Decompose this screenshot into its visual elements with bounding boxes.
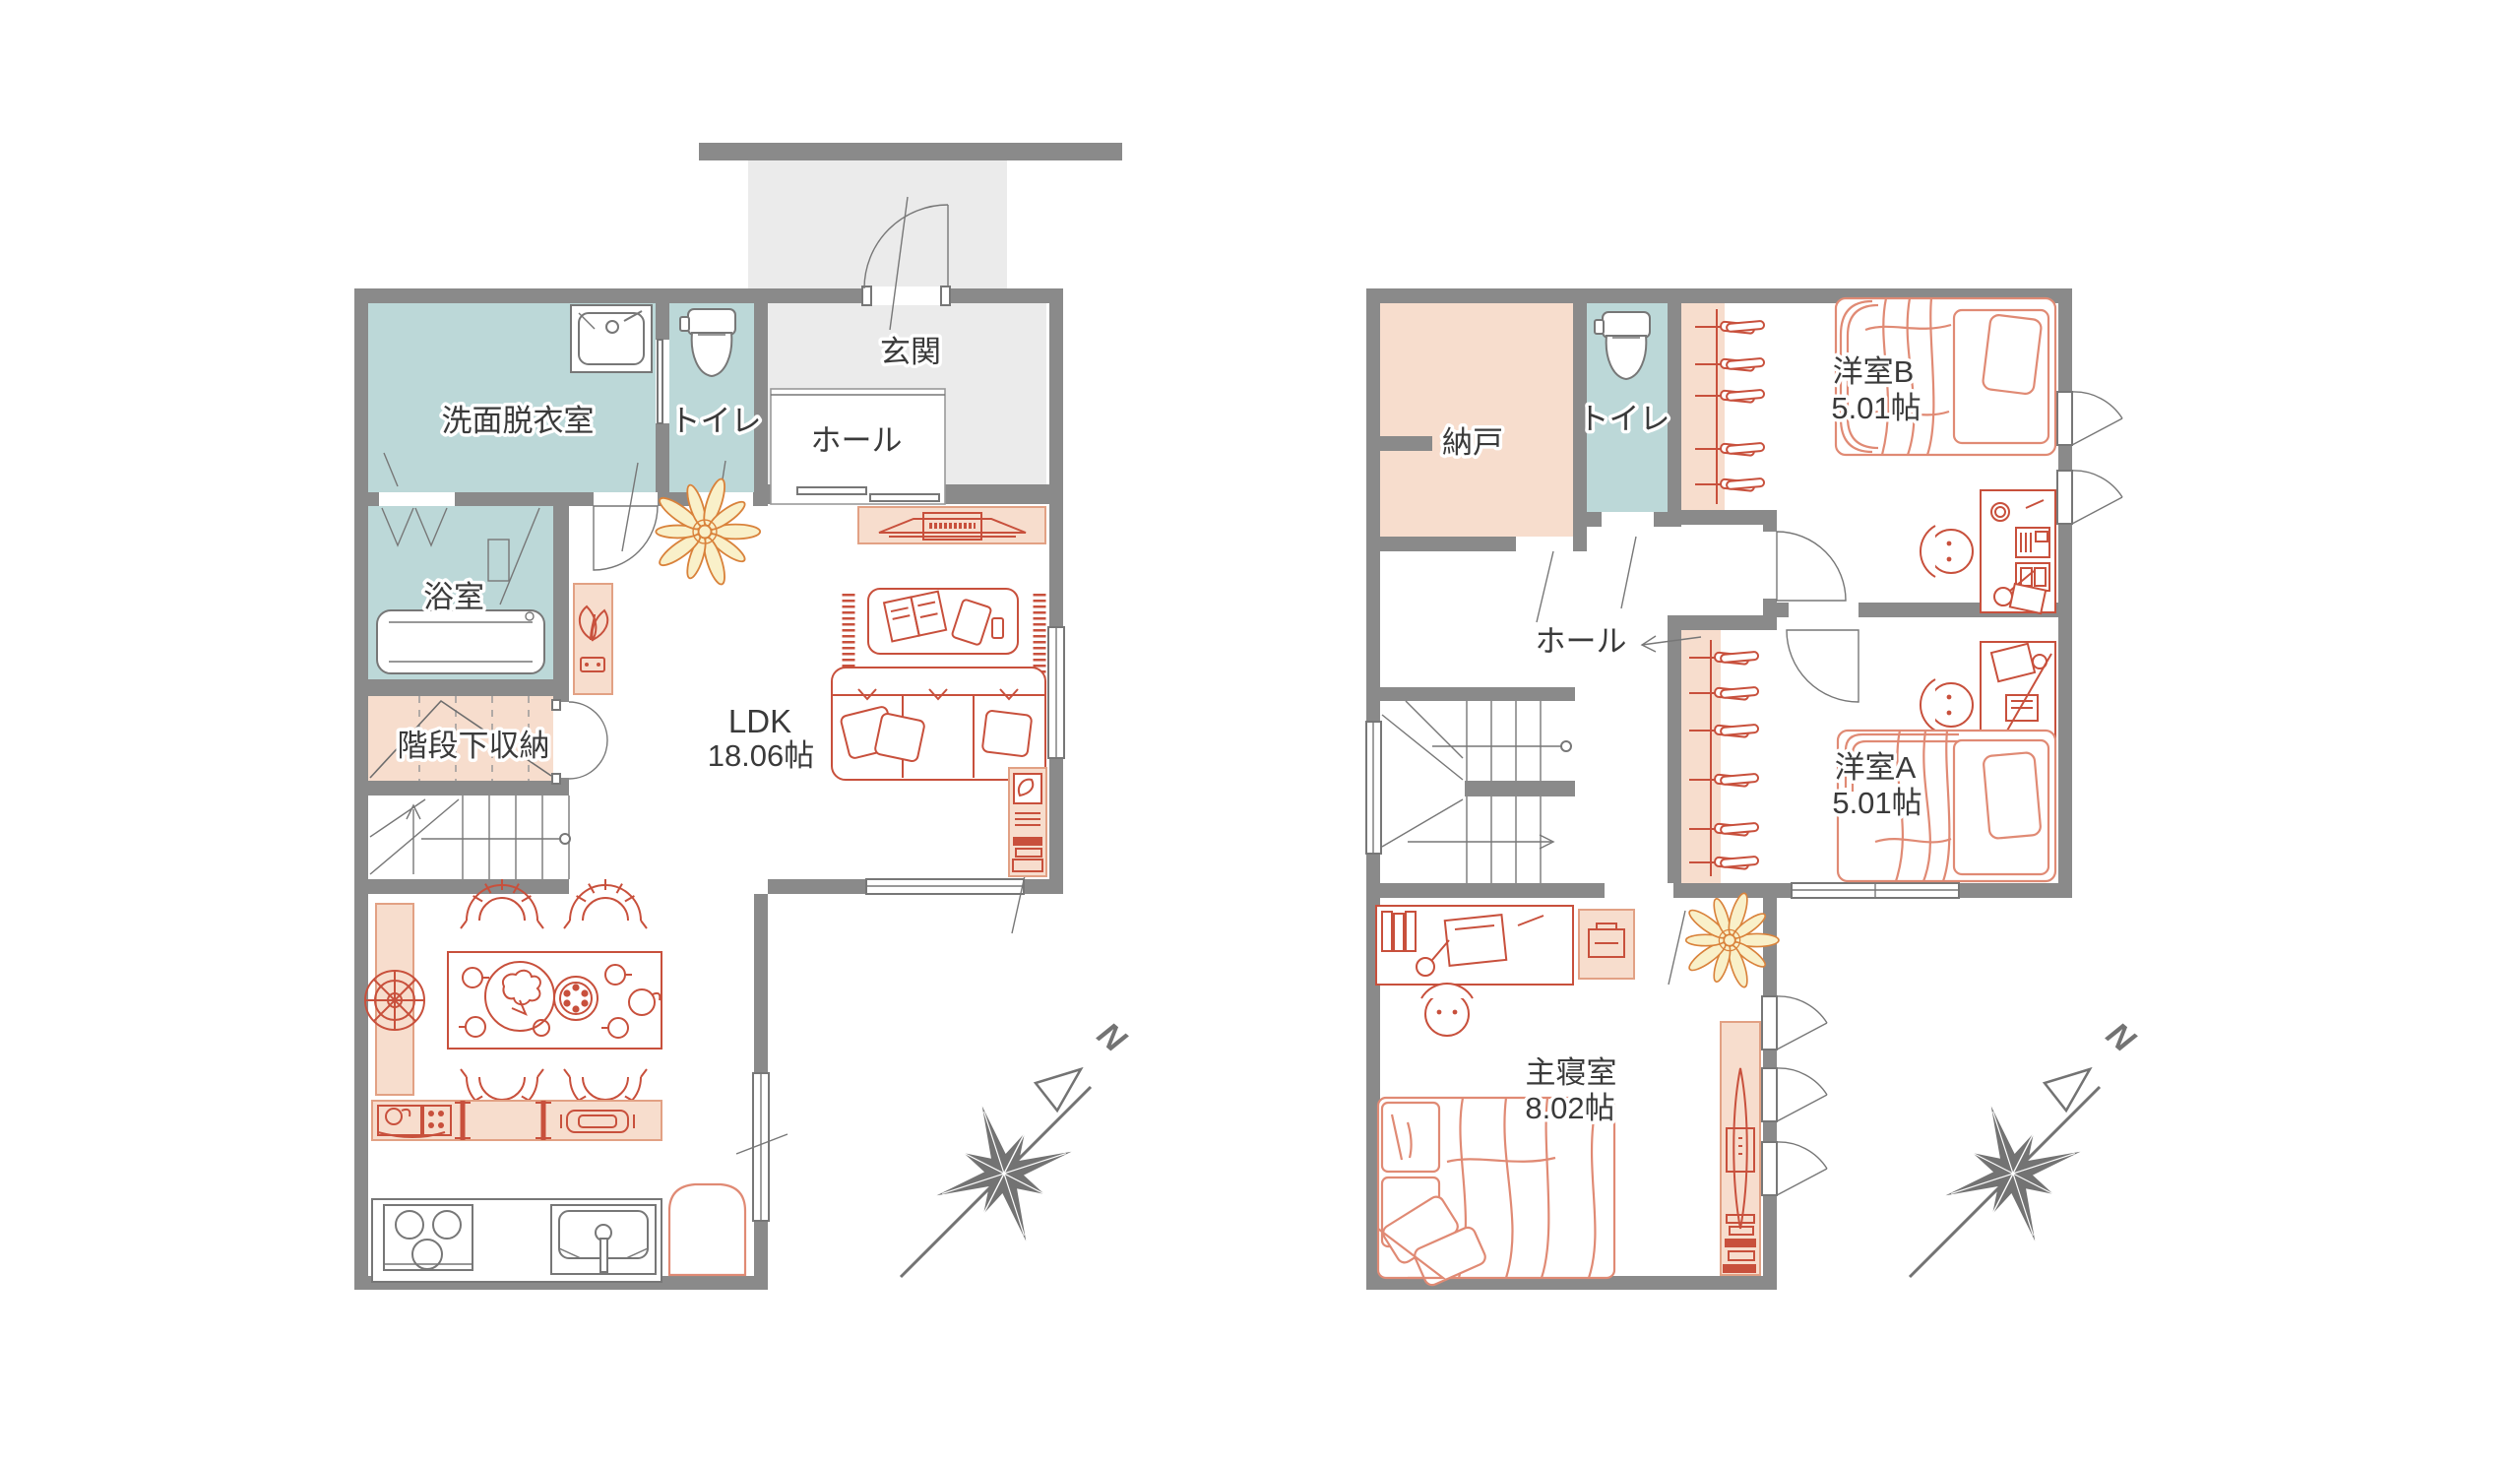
stairs-floor1 bbox=[370, 796, 570, 879]
tv-board bbox=[858, 507, 1045, 543]
room-label-hall1: ホール bbox=[811, 423, 903, 458]
roomA-closet-floor bbox=[1675, 630, 1721, 883]
dining-cupboard bbox=[365, 904, 424, 1095]
side-shelf bbox=[574, 584, 612, 694]
floor2-plan: 納戸 トイレ 洋室B 5.01帖 ホール 洋室A 5.01帖 主寝室 8.02帖… bbox=[1366, 288, 2143, 1290]
room-storage-floor bbox=[1380, 303, 1573, 537]
room-label-understairs: 階段下収納 bbox=[398, 729, 550, 763]
master-desk bbox=[1376, 906, 1573, 1036]
washroom-sink bbox=[571, 305, 652, 372]
roomB-desk bbox=[1921, 490, 2055, 613]
room-label-hall2: ホール bbox=[1536, 624, 1627, 659]
storage-door bbox=[1537, 551, 1553, 622]
room-label-toilet2: トイレ bbox=[1579, 402, 1670, 436]
master-tv-stand bbox=[1721, 1022, 1760, 1275]
sofa bbox=[832, 668, 1045, 780]
refrigerator bbox=[669, 1184, 745, 1275]
room-label-bath: 浴室 bbox=[423, 580, 484, 614]
roomB-closet-floor bbox=[1681, 303, 1725, 510]
compass-north-label-1: N bbox=[1090, 1015, 1133, 1060]
room-label-master: 主寝室 bbox=[1526, 1055, 1617, 1090]
room-label-ldk: LDK bbox=[728, 703, 791, 739]
floor1-plan: 玄関 ホール 洗面脱衣室 トイレ 浴室 階段下収納 LDK 18.06帖 N bbox=[354, 143, 1134, 1290]
ldk-south-window bbox=[866, 845, 1032, 933]
kitchen-counter-island bbox=[372, 1101, 661, 1140]
room-label-entry: 玄関 bbox=[880, 335, 941, 369]
room-area-ldk: 18.06帖 bbox=[708, 738, 815, 773]
roomB-window-1 bbox=[2057, 392, 2122, 445]
dining-set bbox=[448, 879, 661, 1118]
room-area-master: 8.02帖 bbox=[1525, 1091, 1614, 1125]
roomA-door bbox=[1787, 603, 1858, 702]
bookshelf bbox=[1009, 768, 1046, 876]
roomB-door bbox=[1763, 532, 1846, 601]
stairwell-window bbox=[1366, 722, 1381, 854]
ldk-side-window bbox=[1048, 627, 1064, 758]
compass-north-label-2: N bbox=[2099, 1015, 2142, 1060]
toilet2-door bbox=[1602, 512, 1654, 608]
floorplan-canvas: 玄関 ホール 洗面脱衣室 トイレ 浴室 階段下収納 LDK 18.06帖 N bbox=[0, 0, 2520, 1464]
floor-plan-svg: 玄関 ホール 洗面脱衣室 トイレ 浴室 階段下収納 LDK 18.06帖 N bbox=[0, 0, 2520, 1464]
hall-sliding-door bbox=[795, 486, 940, 503]
washroom-pocket-door bbox=[656, 340, 669, 423]
master-bed bbox=[1378, 1098, 1614, 1288]
understairs-double-door bbox=[552, 700, 607, 784]
roomB-window-2 bbox=[2057, 471, 2122, 524]
room-label-storage: 納戸 bbox=[1442, 425, 1503, 460]
master-printer-stand bbox=[1579, 910, 1634, 979]
room-label-toilet1: トイレ bbox=[670, 404, 762, 438]
room-label-roomA: 洋室A bbox=[1835, 750, 1917, 785]
room-label-roomB: 洋室B bbox=[1833, 354, 1915, 389]
master-window-2 bbox=[1762, 1068, 1827, 1121]
entry-porch bbox=[699, 143, 1122, 288]
compass-icon-floor2: N bbox=[1910, 1015, 2143, 1277]
roomA-south-window bbox=[1792, 883, 1959, 898]
room-area-roomB: 5.01帖 bbox=[1831, 391, 1921, 425]
coffee-table bbox=[868, 589, 1018, 654]
room-label-washroom: 洗面脱衣室 bbox=[442, 404, 595, 438]
master-window-3 bbox=[1762, 1142, 1827, 1195]
master-window-1 bbox=[1762, 996, 1827, 1050]
compass-icon-floor1: N bbox=[901, 1015, 1134, 1277]
kitchen-base bbox=[372, 1199, 661, 1282]
room-area-roomA: 5.01帖 bbox=[1832, 786, 1921, 820]
